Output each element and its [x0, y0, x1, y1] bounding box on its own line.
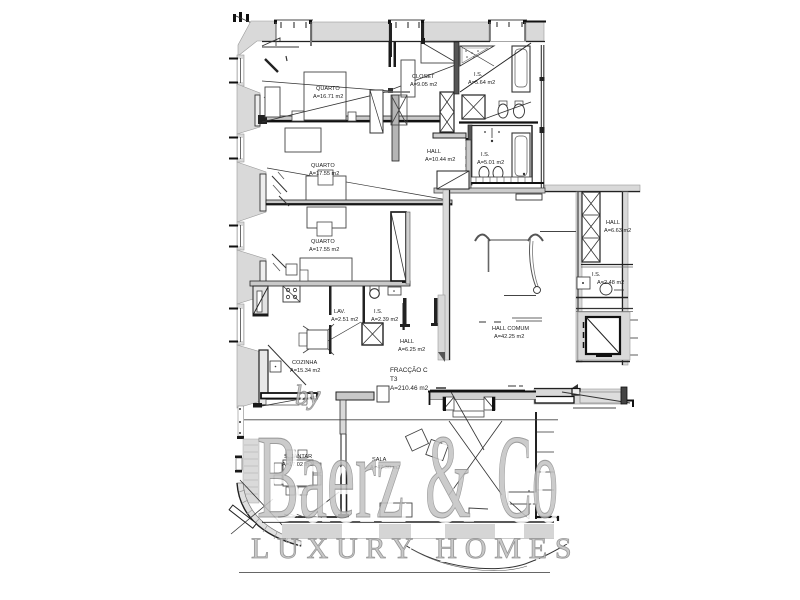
svg-text:I.S.: I.S.	[474, 72, 483, 78]
svg-text:HALL: HALL	[427, 149, 441, 155]
svg-text:QUARTO: QUARTO	[316, 86, 340, 92]
svg-text:LAV.: LAV.	[334, 309, 346, 315]
svg-text:A=2.48 m2: A=2.48 m2	[597, 280, 624, 286]
svg-text:A=16.71 m2: A=16.71 m2	[313, 94, 343, 100]
svg-text:A=17.55 m2: A=17.55 m2	[309, 171, 339, 177]
svg-text:A=10.44 m2: A=10.44 m2	[425, 157, 455, 163]
svg-text:QUARTO: QUARTO	[311, 163, 335, 169]
svg-text:LUXURY HOMES: LUXURY HOMES	[251, 532, 579, 565]
svg-text:A=2.39 m2: A=2.39 m2	[371, 317, 398, 323]
svg-text:HALL COMUM: HALL COMUM	[492, 326, 529, 332]
svg-text:T3: T3	[390, 376, 398, 383]
svg-text:I.S.: I.S.	[481, 152, 490, 158]
svg-text:QUARTO: QUARTO	[311, 239, 335, 245]
svg-text:A=15.34 m2: A=15.34 m2	[290, 368, 320, 374]
svg-text:HALL: HALL	[400, 339, 414, 345]
svg-text:A=210.46 m2: A=210.46 m2	[390, 385, 429, 392]
svg-text:A=17.55 m2: A=17.55 m2	[309, 247, 339, 253]
svg-text:A=5.01 m2: A=5.01 m2	[477, 160, 504, 166]
svg-text:HALL: HALL	[606, 220, 620, 226]
svg-text:A=9.05 m2: A=9.05 m2	[410, 82, 437, 88]
svg-text:A=6.63 m2: A=6.63 m2	[604, 228, 631, 234]
svg-text:A=5.64 m2: A=5.64 m2	[468, 80, 495, 86]
svg-text:by: by	[295, 380, 321, 410]
svg-text:I.S.: I.S.	[592, 272, 601, 278]
svg-text:FRACÇÃO C: FRACÇÃO C	[390, 365, 428, 374]
svg-text:I.S.: I.S.	[374, 309, 383, 315]
svg-text:COZINHA: COZINHA	[292, 360, 317, 366]
svg-text:Baerz: Baerz	[257, 410, 404, 543]
svg-text:A=6.25 m2: A=6.25 m2	[398, 347, 425, 353]
svg-text:A=2.51 m2: A=2.51 m2	[331, 317, 358, 323]
svg-text:&: &	[425, 410, 471, 543]
svg-text:CLOSET: CLOSET	[412, 74, 435, 80]
svg-text:Co: Co	[497, 410, 558, 543]
svg-text:A=42.25 m2: A=42.25 m2	[494, 334, 524, 340]
